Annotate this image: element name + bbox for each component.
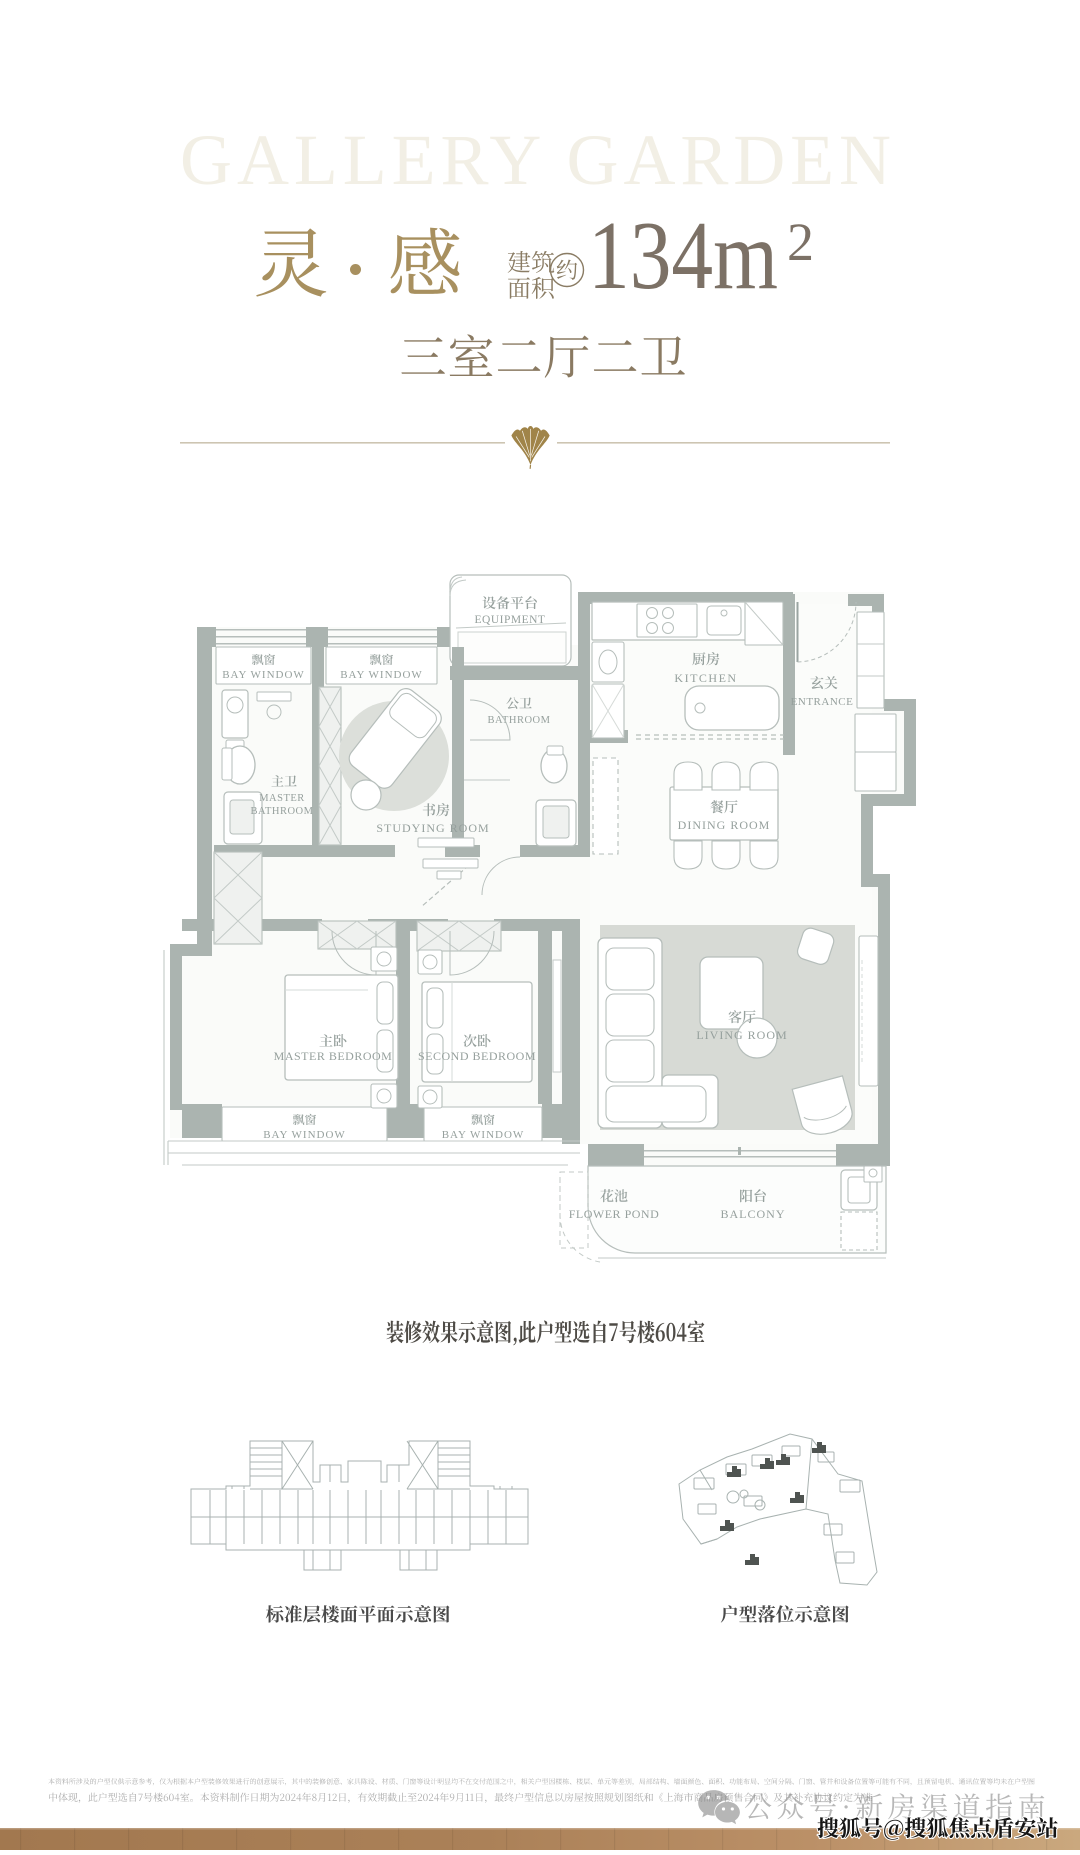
svg-text:BALCONY: BALCONY xyxy=(720,1207,785,1221)
svg-text:BAY WINDOW: BAY WINDOW xyxy=(340,669,423,681)
svg-text:ENTRANCE: ENTRANCE xyxy=(791,696,854,708)
svg-text:KITCHEN: KITCHEN xyxy=(674,671,737,685)
svg-text:MASTER: MASTER xyxy=(259,793,305,804)
svg-text:LIVING ROOM: LIVING ROOM xyxy=(696,1028,787,1042)
svg-text:MASTER BEDROOM: MASTER BEDROOM xyxy=(274,1049,393,1063)
svg-text:GALLERY GARDEN: GALLERY GARDEN xyxy=(180,120,896,200)
svg-text:BATHROOM: BATHROOM xyxy=(488,715,551,726)
svg-text:BAY WINDOW: BAY WINDOW xyxy=(222,669,305,681)
svg-text:DINING ROOM: DINING ROOM xyxy=(678,818,771,832)
svg-text:BAY WINDOW: BAY WINDOW xyxy=(263,1129,346,1141)
svg-text:STUDYING ROOM: STUDYING ROOM xyxy=(376,821,489,835)
svg-text:134m: 134m xyxy=(588,202,778,309)
svg-text:SECOND BEDROOM: SECOND BEDROOM xyxy=(418,1049,536,1063)
svg-text:BAY WINDOW: BAY WINDOW xyxy=(442,1129,525,1141)
svg-text:FLOWER POND: FLOWER POND xyxy=(569,1207,660,1221)
svg-text:2: 2 xyxy=(787,212,814,272)
svg-text:BATHROOM: BATHROOM xyxy=(251,806,314,817)
svg-text:EQUIPMENT: EQUIPMENT xyxy=(475,614,546,626)
